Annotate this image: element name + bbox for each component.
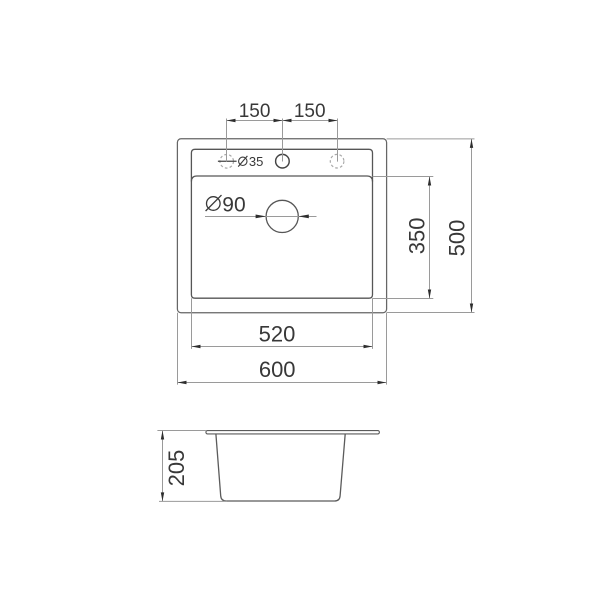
svg-text:150: 150 — [294, 101, 326, 122]
svg-text:35: 35 — [249, 154, 263, 169]
svg-text:520: 520 — [259, 322, 296, 347]
svg-text:350: 350 — [404, 218, 429, 255]
svg-text:150: 150 — [239, 101, 271, 122]
svg-text:205: 205 — [164, 450, 189, 487]
svg-text:500: 500 — [444, 220, 469, 257]
svg-text:600: 600 — [259, 357, 296, 382]
svg-text:90: 90 — [222, 193, 245, 216]
